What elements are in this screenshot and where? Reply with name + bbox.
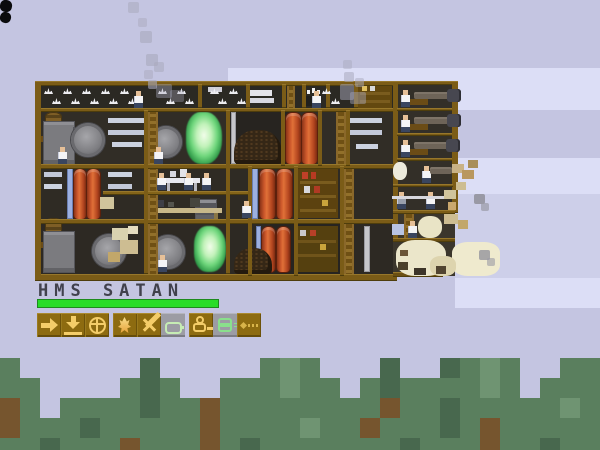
gun-deck-beam [397, 133, 452, 136]
tree-block [500, 418, 520, 439]
tree-block [400, 378, 420, 399]
debris [120, 240, 138, 254]
tree-block [220, 398, 240, 419]
tree-block [280, 378, 300, 399]
gun-deck-beam [397, 108, 452, 111]
target-button[interactable] [189, 313, 213, 337]
tree-block [280, 438, 300, 450]
boiler [87, 169, 100, 219]
crew-member [134, 91, 143, 108]
repair-button[interactable] [137, 313, 161, 337]
tree-block [20, 418, 40, 439]
tree-block [580, 418, 600, 439]
tree-block [420, 418, 440, 439]
cannon-barrel [430, 167, 452, 174]
tree-block [60, 438, 80, 450]
tree-block [140, 378, 160, 399]
tree-block [560, 418, 580, 439]
shelf-line [298, 254, 336, 257]
wall-beam [248, 166, 252, 276]
item [300, 230, 306, 236]
wreck-debris [448, 202, 456, 210]
boiler [74, 169, 86, 219]
shelf [350, 130, 382, 135]
tree-block [500, 378, 520, 399]
land-order-button[interactable] [61, 313, 85, 337]
repair-icon [140, 316, 158, 334]
tree-block [260, 438, 280, 450]
tree-block [240, 398, 260, 419]
tree-block [480, 438, 500, 450]
crew-member [154, 147, 163, 164]
tree-block [440, 378, 460, 399]
boiler [260, 169, 275, 219]
electric-generator [194, 226, 226, 272]
item [168, 202, 174, 207]
tree-block [120, 378, 140, 399]
debris [108, 252, 120, 262]
tree-block [480, 378, 500, 399]
tree-block [560, 358, 580, 379]
tree-block [260, 378, 280, 399]
tree-block [340, 438, 360, 450]
tree-block [400, 418, 420, 439]
tree-block [0, 418, 20, 439]
debris [100, 197, 114, 209]
tree-block [60, 398, 80, 419]
tree-block [540, 378, 560, 399]
item [370, 86, 375, 91]
coal-pile [234, 248, 272, 274]
target-icon [192, 316, 210, 334]
smk [481, 203, 489, 211]
wreck-debris [400, 250, 408, 256]
tree-block [360, 438, 380, 450]
wreck-debris [436, 266, 446, 274]
tree-block [560, 438, 580, 450]
wall-beam [340, 166, 344, 276]
gun-carriage [410, 124, 428, 130]
gun-carriage [410, 99, 428, 105]
gunner [401, 115, 410, 132]
tree-block [500, 438, 520, 450]
shelf-line [300, 209, 336, 212]
gun-deck-beam [393, 184, 453, 187]
projectile-dot [0, 11, 12, 24]
tree-block [360, 398, 380, 419]
deck-beam [35, 108, 397, 112]
shelf [108, 172, 132, 177]
game-viewport[interactable]: HMS SATAN [0, 0, 600, 450]
tree-block [440, 398, 460, 419]
gun-wall [393, 81, 398, 241]
tree-block [160, 398, 180, 419]
tree-block [540, 418, 560, 439]
smk [344, 72, 354, 82]
tree-block [360, 378, 380, 399]
tree-block [200, 438, 220, 450]
tree-block [440, 358, 460, 379]
gun-deck-beam [397, 158, 452, 161]
crew-member [158, 255, 167, 272]
behavior-button[interactable] [237, 313, 261, 337]
links2-icon [216, 316, 234, 334]
tree-block [420, 398, 440, 419]
wreck-debris [458, 220, 468, 229]
tree-block [300, 418, 320, 439]
tree-block [160, 378, 180, 399]
tree-block [580, 438, 600, 450]
boiler [277, 227, 290, 272]
shelf-line [298, 240, 336, 243]
ladder [287, 86, 295, 108]
deck-post [246, 84, 250, 108]
debris [112, 228, 128, 240]
tree-block [520, 438, 540, 450]
tree-block [0, 398, 20, 419]
console [250, 90, 272, 96]
flywheel [71, 123, 105, 157]
smk [128, 2, 139, 13]
tree-block [460, 358, 480, 379]
tree-block [420, 438, 440, 450]
wreck-debris [393, 162, 407, 180]
smoke-puff [418, 216, 442, 238]
tree-block [480, 358, 500, 379]
tree-block [300, 358, 320, 379]
crew-member [157, 173, 166, 190]
crew-member [184, 173, 193, 190]
rail [392, 196, 452, 199]
tree-block [260, 398, 280, 419]
helm-button[interactable] [85, 313, 109, 337]
ladder [344, 224, 354, 274]
wreck-debris [462, 170, 474, 179]
tree-block [480, 418, 500, 439]
boiler [302, 113, 317, 164]
wall-beam [144, 110, 148, 274]
tree-block [460, 398, 480, 419]
tree-block [460, 438, 480, 450]
crew-member [242, 201, 251, 218]
tree-block [0, 438, 20, 450]
item [170, 171, 176, 177]
gun-deck-beam [393, 81, 455, 85]
crew-member [408, 221, 417, 238]
tree-block [280, 358, 300, 379]
tree-block [560, 378, 580, 399]
wall-beam [294, 166, 298, 276]
tree-block [580, 358, 600, 379]
tree-block [0, 358, 20, 379]
arrow-right-icon [40, 316, 58, 334]
tree-block [320, 378, 340, 399]
ladder [336, 112, 346, 164]
item [314, 186, 320, 193]
tree-block [60, 418, 80, 439]
item [304, 186, 310, 193]
tree-block [120, 438, 140, 450]
tree-block [220, 438, 240, 450]
gunner [401, 140, 410, 157]
tree-block [540, 398, 560, 419]
tree-block [80, 438, 100, 450]
tree-block [40, 438, 60, 450]
electric-generator [186, 112, 222, 164]
crew-links-button[interactable] [213, 313, 237, 337]
tree-block [180, 398, 200, 419]
crew-member [202, 173, 211, 190]
link-icon [165, 322, 182, 334]
tree-block [540, 438, 560, 450]
tree-block [400, 438, 420, 450]
smk [154, 62, 164, 72]
tree-block [240, 438, 260, 450]
shelf [350, 118, 382, 123]
deck-post [198, 84, 202, 108]
item [302, 172, 308, 179]
tree-block [500, 398, 520, 419]
pipe [364, 226, 370, 272]
blue [67, 168, 73, 219]
tree-block [180, 418, 200, 439]
tree-block [520, 398, 540, 419]
workbench [148, 208, 222, 213]
smk [170, 90, 184, 102]
shelf [44, 184, 62, 189]
ship-name-label: HMS SATAN [38, 281, 184, 301]
tree-block [180, 438, 200, 450]
crew-member [58, 147, 67, 164]
tree-block [320, 418, 340, 439]
tree-block [300, 438, 320, 450]
tree-block [400, 398, 420, 419]
tree-block [560, 398, 580, 419]
tree-block [160, 438, 180, 450]
tree-block [320, 398, 340, 419]
tree-block [380, 378, 400, 399]
wreck-debris [444, 214, 458, 224]
wall-beam [226, 110, 230, 274]
table-leg [167, 183, 170, 191]
item [190, 198, 200, 207]
smk [138, 18, 147, 27]
tree-block [240, 378, 260, 399]
shelf [108, 130, 144, 135]
shelf [112, 142, 142, 147]
gunner [401, 90, 410, 107]
boiler [286, 113, 301, 164]
tree-block [100, 398, 120, 419]
smk [355, 78, 364, 87]
wreck-debris [468, 160, 478, 168]
tree-block [380, 438, 400, 450]
cloud-band [447, 194, 600, 242]
item [322, 200, 328, 206]
tree-block [140, 438, 160, 450]
tree-block [580, 398, 600, 419]
tree-block [260, 358, 280, 379]
tree-block [280, 398, 300, 419]
fire-status-button[interactable] [113, 313, 137, 337]
tree-block [220, 418, 240, 439]
fire-icon [116, 316, 134, 334]
tree-block [20, 378, 40, 399]
shelf [356, 144, 378, 149]
table-leg [194, 183, 197, 191]
tree-block [580, 378, 600, 399]
console [248, 98, 274, 103]
effects-layer [0, 0, 600, 23]
wreck-debris [392, 224, 404, 235]
debris [128, 226, 138, 234]
tree-block [120, 398, 140, 419]
cannon-muzzle [447, 89, 461, 102]
smk [487, 258, 495, 266]
tree-block [360, 418, 380, 439]
cloud-band [455, 278, 600, 308]
wall-beam [318, 110, 322, 166]
smk [350, 92, 366, 104]
smk [140, 31, 152, 43]
tree-block [140, 418, 160, 439]
tree-block [200, 418, 220, 439]
tree-block [440, 418, 460, 439]
arrow-down-icon [64, 316, 82, 335]
tree-block [100, 418, 120, 439]
smk [144, 70, 153, 79]
shelf [108, 118, 144, 123]
cannon-muzzle [446, 139, 460, 152]
tree-block [20, 438, 40, 450]
move-order-button[interactable] [37, 313, 61, 337]
tree-block [20, 398, 40, 419]
tree-block [260, 418, 280, 439]
engine [44, 232, 74, 272]
tree-block [420, 378, 440, 399]
link-button[interactable] [161, 313, 185, 337]
cannon-muzzle [447, 114, 461, 127]
hull-wall [35, 81, 41, 281]
shelf-line [300, 195, 336, 198]
tree-block [240, 418, 260, 439]
tree-block [300, 398, 320, 419]
tree-block [460, 378, 480, 399]
ladder [344, 168, 354, 219]
tree-block [280, 418, 300, 439]
shelf-line [300, 181, 336, 184]
tree-block [80, 418, 100, 439]
tree-block [480, 398, 500, 419]
tree-block [140, 358, 160, 379]
tree-block [340, 418, 360, 439]
health-bar [37, 299, 219, 308]
boiler [277, 169, 292, 219]
tree-block [40, 418, 60, 439]
tree-block [380, 358, 400, 379]
tree-block [500, 358, 520, 379]
tree-block [520, 418, 540, 439]
item [307, 90, 310, 94]
wreck-debris [444, 190, 456, 199]
wreck-debris [414, 268, 426, 275]
tree-block [320, 438, 340, 450]
tree-block [340, 398, 360, 419]
blue [252, 168, 258, 219]
tree-block [100, 438, 120, 450]
wreck-debris [456, 182, 466, 190]
crew-member [312, 91, 321, 108]
crew-member [426, 192, 435, 209]
deck-post [302, 84, 306, 108]
tree-block [460, 418, 480, 439]
wall-beam [346, 110, 350, 166]
item [311, 172, 316, 179]
shelf [44, 172, 62, 177]
gun-carriage [410, 149, 428, 155]
deck-post [282, 84, 286, 108]
wall-beam [281, 110, 285, 166]
tree-block [80, 398, 100, 419]
tree-block [440, 438, 460, 450]
shelf [108, 184, 132, 189]
smk [343, 60, 352, 69]
tree-block [200, 398, 220, 419]
helm-icon [89, 317, 106, 334]
tree-block [140, 398, 160, 419]
tree-block [380, 398, 400, 419]
wreck-debris [398, 262, 408, 270]
tree-block [160, 418, 180, 439]
coal-pile [234, 130, 282, 164]
item [320, 244, 326, 250]
crew-member [397, 192, 406, 209]
tree-block [220, 378, 240, 399]
tree-block [120, 418, 140, 439]
dots-icon [240, 316, 258, 334]
tree-block [380, 418, 400, 439]
tree-block [0, 378, 20, 399]
item [310, 230, 316, 236]
tree-block [300, 378, 320, 399]
deck-post [326, 84, 330, 108]
